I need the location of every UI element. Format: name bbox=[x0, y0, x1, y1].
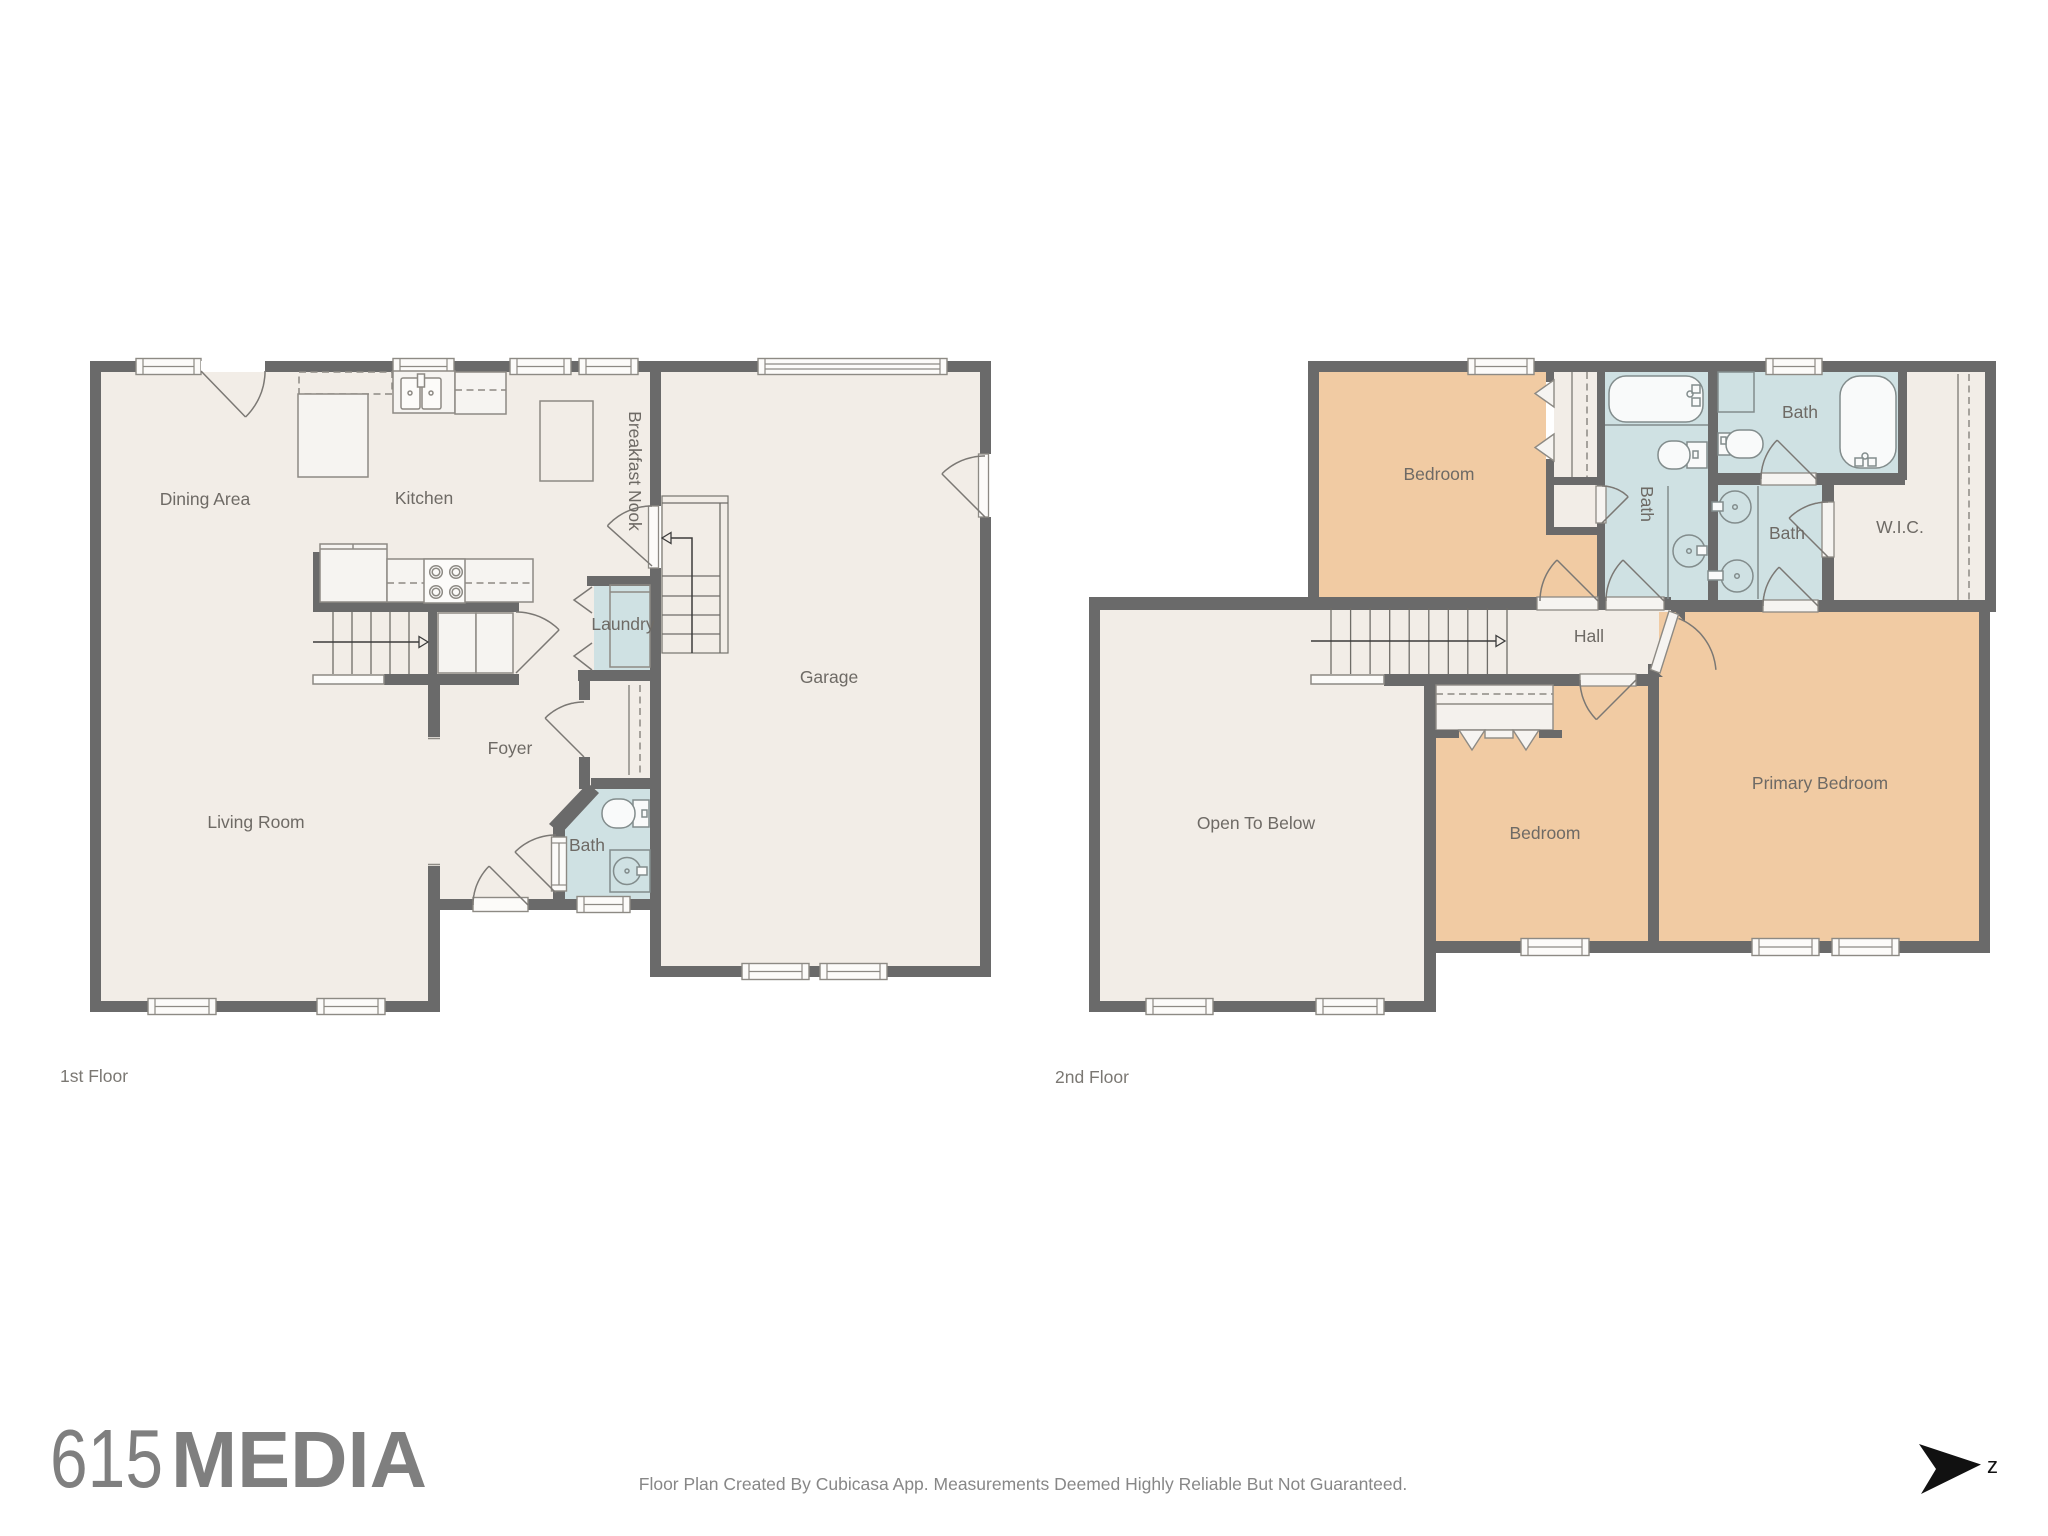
svg-text:Hall: Hall bbox=[1574, 626, 1604, 646]
svg-text:Open To Below: Open To Below bbox=[1197, 813, 1316, 833]
svg-text:Breakfast Nook: Breakfast Nook bbox=[625, 411, 645, 531]
svg-text:z: z bbox=[1987, 1453, 1998, 1478]
svg-text:Garage: Garage bbox=[800, 667, 858, 687]
svg-text:Dining Area: Dining Area bbox=[160, 489, 251, 509]
svg-text:Bath: Bath bbox=[569, 835, 605, 855]
svg-text:Bedroom: Bedroom bbox=[1509, 823, 1580, 843]
svg-text:615: 615 bbox=[50, 1412, 163, 1505]
svg-text:MEDIA: MEDIA bbox=[171, 1415, 427, 1504]
svg-text:Bath: Bath bbox=[1769, 523, 1805, 543]
svg-text:Living Room: Living Room bbox=[207, 812, 304, 832]
svg-text:W.I.C.: W.I.C. bbox=[1876, 517, 1924, 537]
svg-text:Floor Plan Created By Cubicasa: Floor Plan Created By Cubicasa App. Meas… bbox=[639, 1474, 1407, 1494]
svg-text:Primary Bedroom: Primary Bedroom bbox=[1752, 773, 1888, 793]
svg-text:2nd Floor: 2nd Floor bbox=[1055, 1067, 1129, 1087]
svg-text:Kitchen: Kitchen bbox=[395, 488, 453, 508]
svg-text:Bath: Bath bbox=[1637, 486, 1657, 522]
svg-text:Foyer: Foyer bbox=[488, 738, 533, 758]
svg-text:1st Floor: 1st Floor bbox=[60, 1066, 128, 1086]
svg-text:Bedroom: Bedroom bbox=[1403, 464, 1474, 484]
svg-text:Laundry: Laundry bbox=[591, 614, 654, 634]
svg-text:Bath: Bath bbox=[1782, 402, 1818, 422]
